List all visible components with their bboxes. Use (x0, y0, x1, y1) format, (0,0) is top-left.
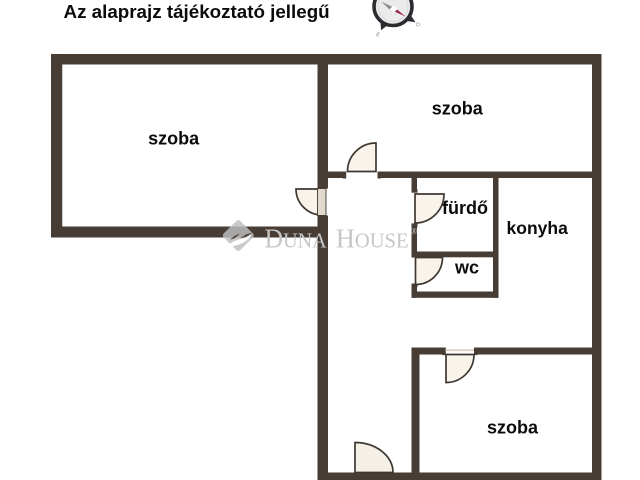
svg-text:szoba: szoba (432, 99, 484, 119)
svg-text:Az alaprajz tájékoztató jelleg: Az alaprajz tájékoztató jellegű (64, 1, 330, 22)
svg-text:szoba: szoba (487, 418, 539, 438)
svg-text:wc: wc (454, 258, 479, 278)
svg-text:konyha: konyha (507, 218, 569, 238)
svg-text:fürdő: fürdő (442, 198, 488, 218)
svg-text:®: ® (411, 226, 418, 236)
svg-text:szoba: szoba (148, 129, 200, 149)
